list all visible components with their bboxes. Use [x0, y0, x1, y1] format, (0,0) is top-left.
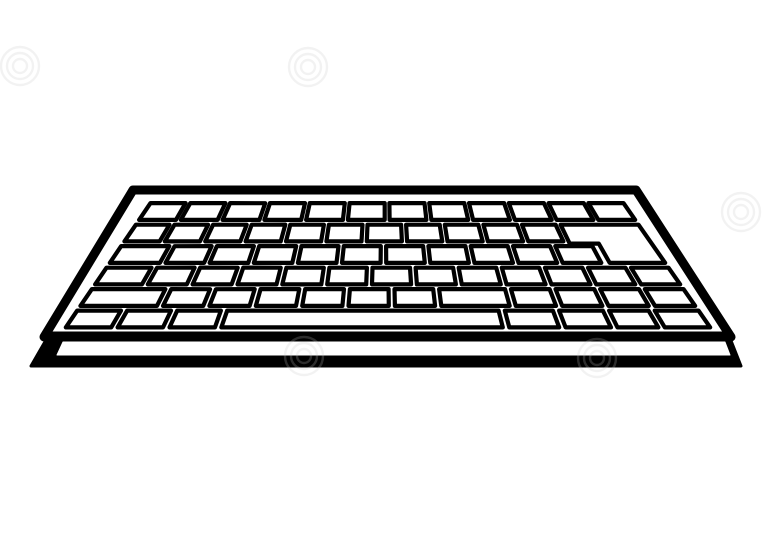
keyboard-key [254, 246, 296, 263]
keyboard-key [66, 311, 121, 328]
keyboard-key [264, 203, 305, 220]
keyboard-key [349, 289, 389, 306]
keyboard-key [367, 225, 402, 242]
keyboard-key [118, 311, 171, 328]
keyboard-key [429, 203, 468, 220]
keyboard-key [165, 225, 208, 242]
keyboard-key [395, 289, 436, 306]
keyboard-key [502, 268, 546, 285]
keyboard-key [469, 203, 510, 220]
keyboard-key [471, 246, 513, 263]
keyboard-key [609, 311, 658, 328]
swirl-logo-icon [722, 193, 760, 231]
keyboard-key [326, 225, 362, 242]
keyboard-key [655, 311, 711, 328]
keyboard-key [545, 268, 591, 285]
keyboard-front-band [57, 342, 730, 355]
keyboard-key [193, 268, 238, 285]
keyboard-key [505, 311, 559, 328]
keyboard-key [163, 289, 210, 306]
keyboard-key [509, 203, 552, 220]
keyboard-key [513, 246, 557, 263]
keyboard-key [348, 203, 385, 220]
keyboard-key [588, 268, 635, 285]
keyboard-drawing [0, 0, 768, 553]
keyboard-key [342, 246, 381, 263]
keyboard-key [181, 203, 226, 220]
keyboard-key [372, 268, 411, 285]
keyboard-key [166, 246, 212, 263]
keyboard-key [282, 268, 324, 285]
keyboard-key [286, 225, 324, 242]
keyboard-illustration [0, 0, 768, 553]
keyboard-key [389, 203, 426, 220]
keyboard-key [645, 289, 695, 306]
keyboard-key [556, 289, 603, 306]
keyboard-key [148, 268, 195, 285]
keyboard-key [205, 225, 247, 242]
keyboard-key [306, 203, 345, 220]
keyboard-key [246, 225, 286, 242]
keyboard-key [483, 225, 523, 242]
keyboard-key [555, 246, 601, 263]
keyboard-key [238, 268, 281, 285]
keyboard-key [522, 225, 563, 242]
spacebar-key [221, 311, 503, 328]
keyboard-key [549, 203, 594, 220]
swirl-logo-icon [1, 47, 39, 85]
keyboard-key [110, 246, 170, 263]
keyboard-key [327, 268, 367, 285]
keyboard-key [511, 289, 556, 306]
keyboard-key [559, 311, 611, 328]
keyboard-key [95, 268, 151, 285]
keyboard-key [223, 203, 266, 220]
keyboard-key [170, 311, 221, 328]
keyboard-key [406, 225, 442, 242]
keyboard-key [386, 246, 425, 263]
keyboard-key [302, 289, 344, 306]
keyboard-key [210, 246, 254, 263]
keyboard-key [445, 225, 483, 242]
keyboard-key [459, 268, 501, 285]
keyboard-key [80, 289, 165, 306]
keyboard-key [256, 289, 299, 306]
swirl-logo-icon [289, 48, 327, 86]
keyboard-key [439, 289, 510, 306]
keyboard-key [428, 246, 469, 263]
keyboard-key [416, 268, 456, 285]
keyboard-key [600, 289, 649, 306]
keyboard-key [209, 289, 254, 306]
keyboard-key [298, 246, 339, 263]
